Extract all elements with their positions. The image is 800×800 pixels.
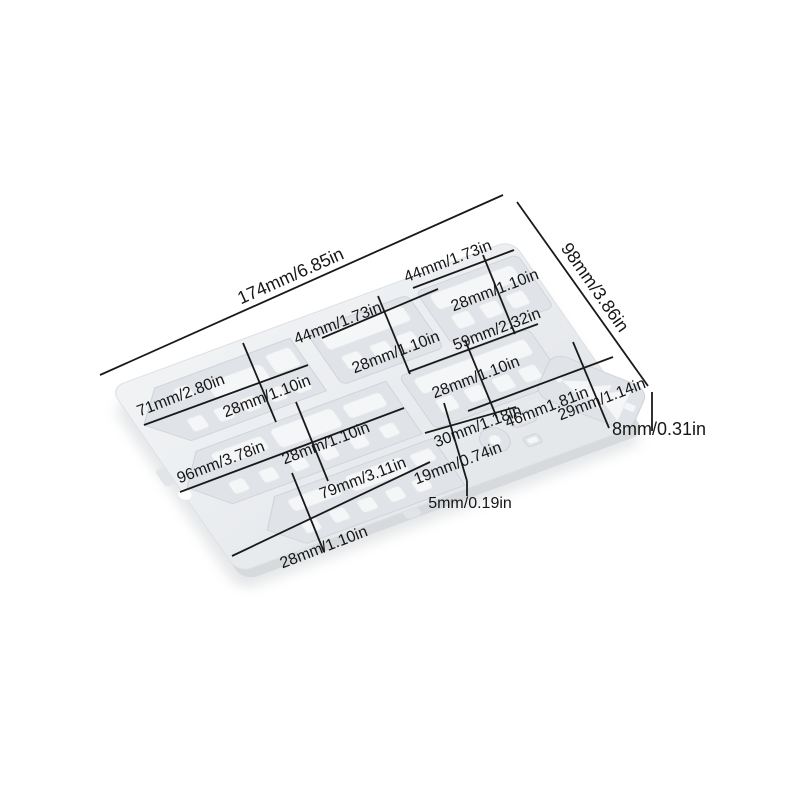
dim-label-overall-length: 174mm/6.85in — [234, 244, 346, 309]
dim-label-thickness: 8mm/0.31in — [612, 419, 706, 439]
dim-label-small-piece: 5mm/0.19in — [428, 495, 512, 512]
product-dimension-diagram: 174mm/6.85in 98mm/3.86in 8mm/0.31in 71mm… — [0, 0, 800, 800]
